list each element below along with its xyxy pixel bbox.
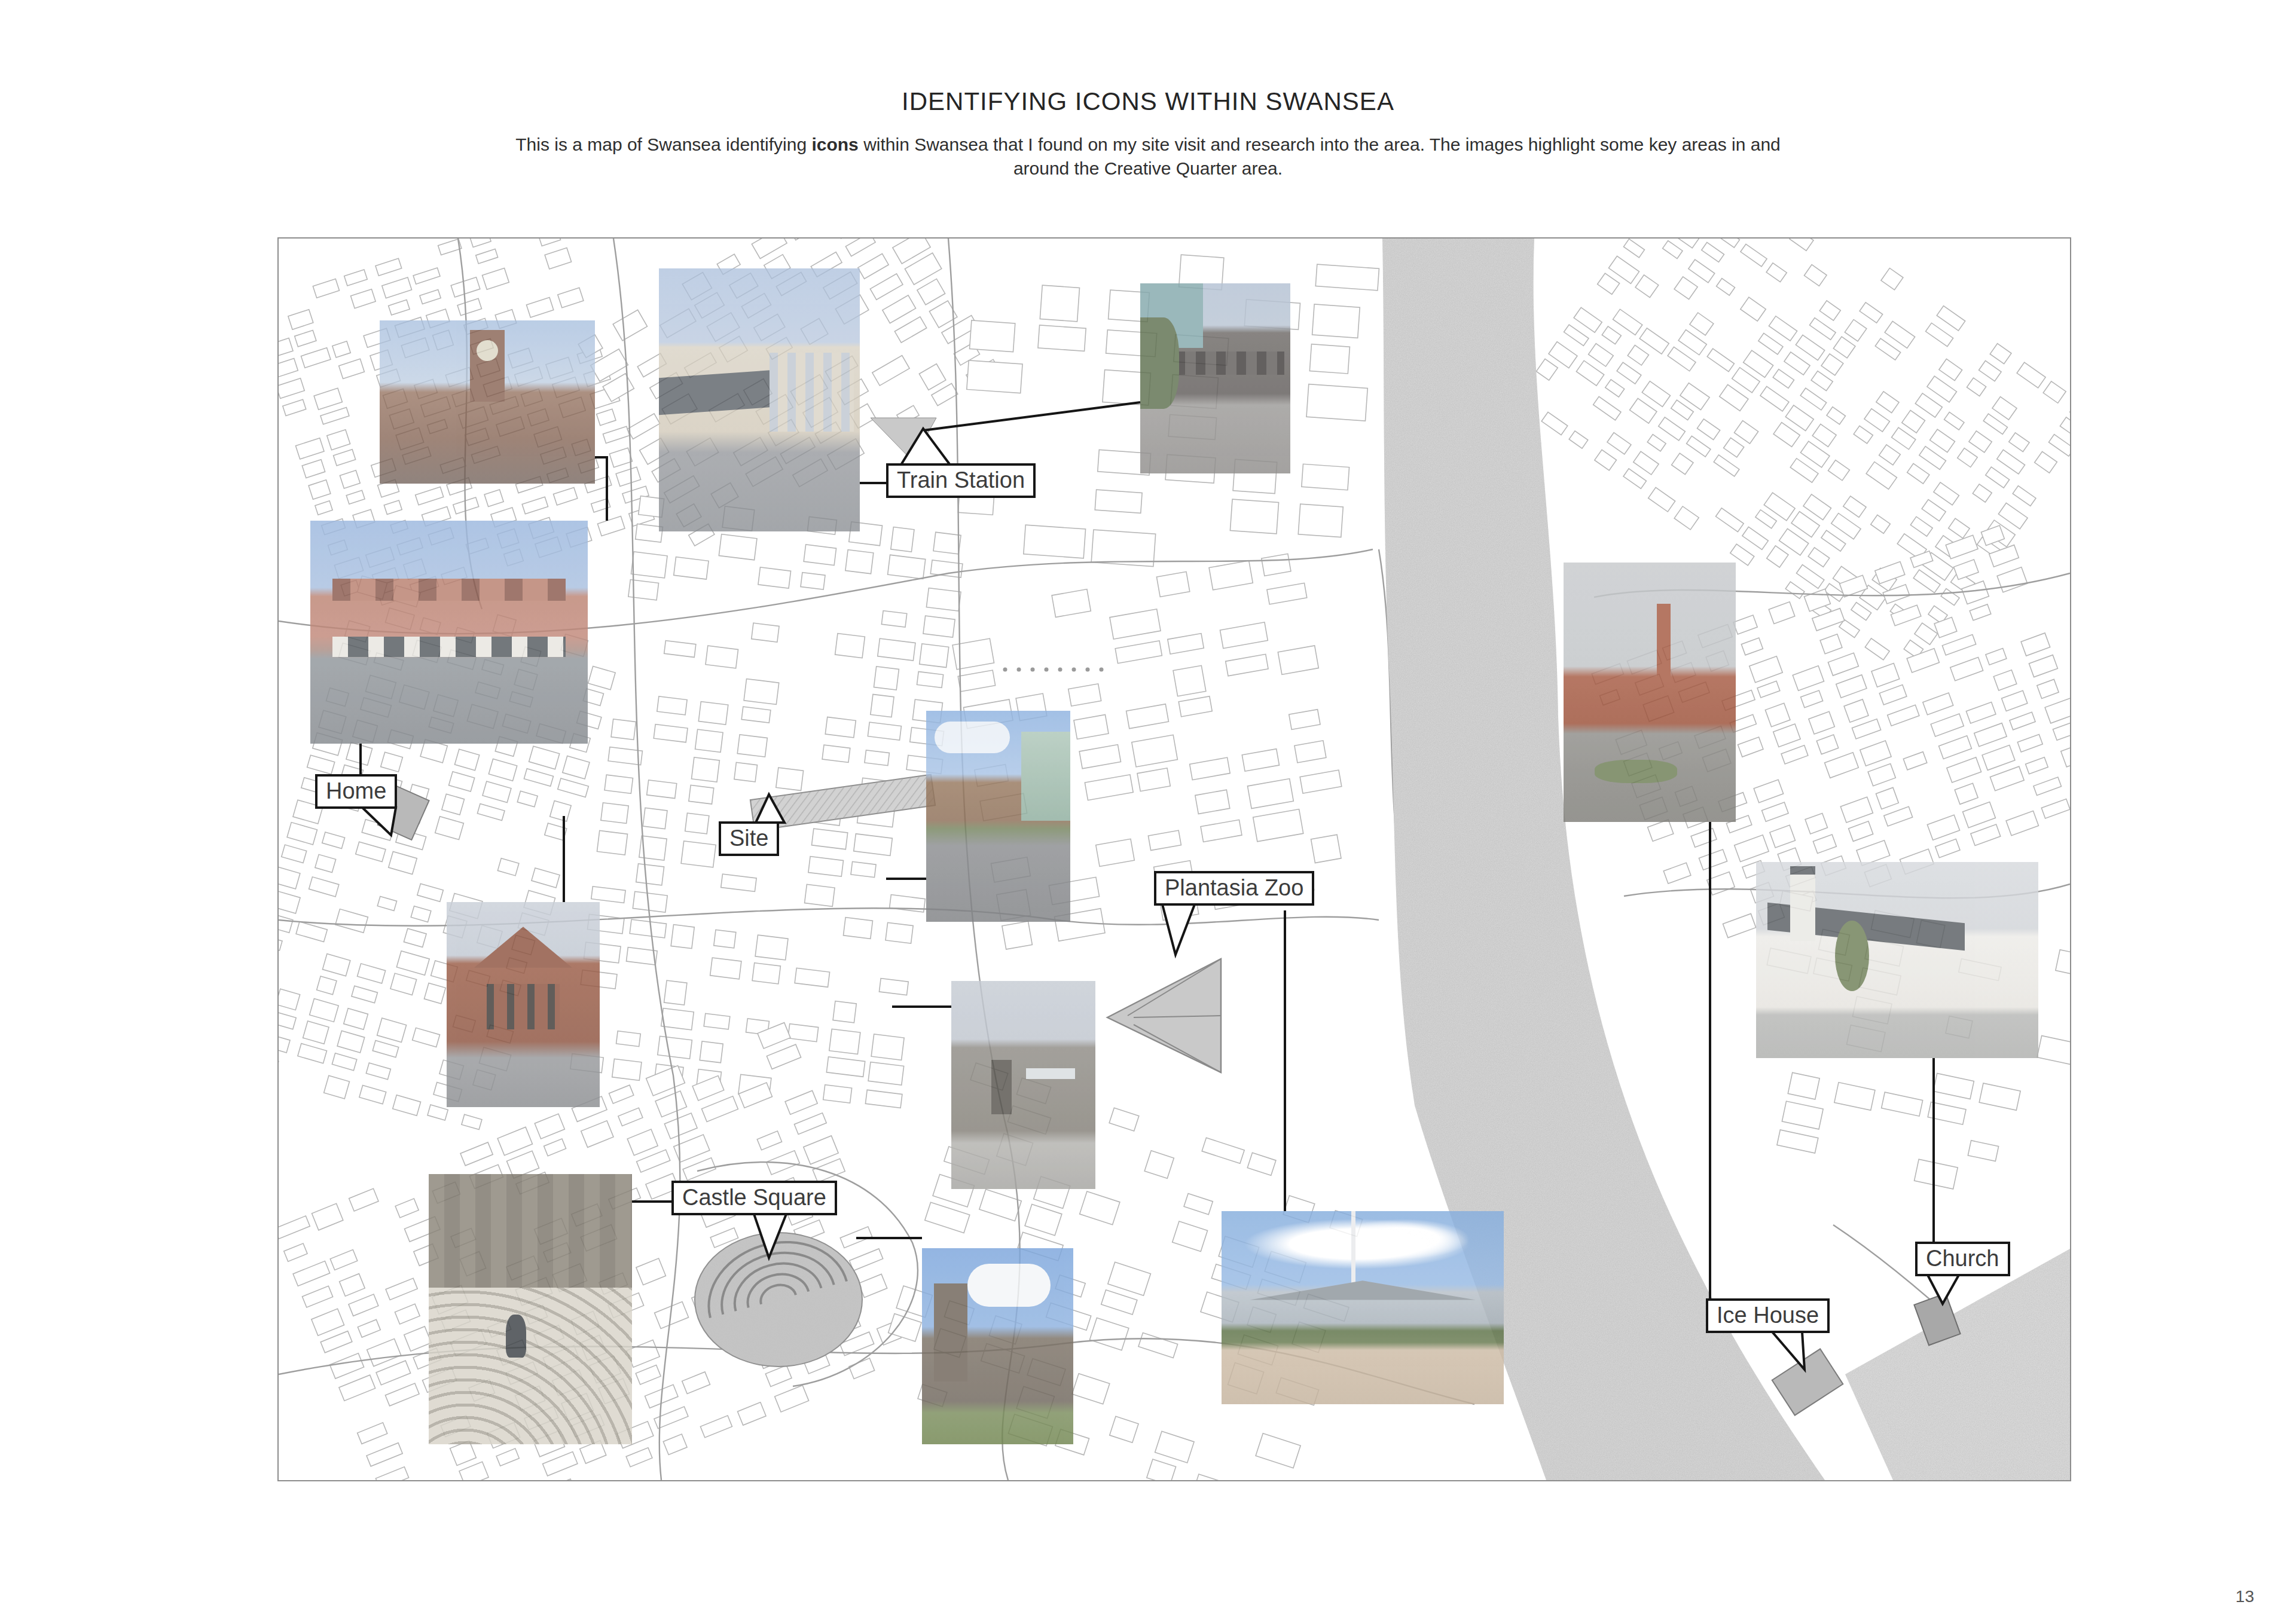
page-subtitle: This is a map of Swansea identifying ico… xyxy=(502,133,1794,181)
label-ice-house: Ice House xyxy=(1706,1298,1830,1333)
label-site: Site xyxy=(719,821,779,856)
pointer-ice-house xyxy=(1772,1332,1805,1370)
pointer-train-station xyxy=(900,429,951,466)
label-church: Church xyxy=(1915,1242,2010,1276)
subtitle-bold-icons: icons xyxy=(811,135,858,154)
pointer-church xyxy=(1928,1275,1959,1304)
label-castle-square: Castle Square xyxy=(671,1181,837,1215)
portfolio-page: IDENTIFYING ICONS WITHIN SWANSEA This is… xyxy=(0,0,2296,1623)
swansea-map: Train Station Home Site Plantasia Zoo Ca… xyxy=(277,237,2071,1481)
page-title: IDENTIFYING ICONS WITHIN SWANSEA xyxy=(0,87,2296,116)
connector-lines xyxy=(279,239,2070,1480)
subtitle-text-before: This is a map of Swansea identifying xyxy=(515,135,811,154)
pointer-plantasia xyxy=(1162,904,1195,955)
label-train-station: Train Station xyxy=(886,463,1036,498)
subtitle-text-after: within Swansea that I found on my site v… xyxy=(859,135,1781,178)
pointer-castle-square xyxy=(754,1214,786,1258)
label-plantasia-zoo: Plantasia Zoo xyxy=(1154,871,1314,906)
pointer-site xyxy=(756,794,784,823)
pointer-home xyxy=(362,808,396,835)
page-number: 13 xyxy=(2236,1587,2254,1606)
label-home: Home xyxy=(315,774,397,809)
